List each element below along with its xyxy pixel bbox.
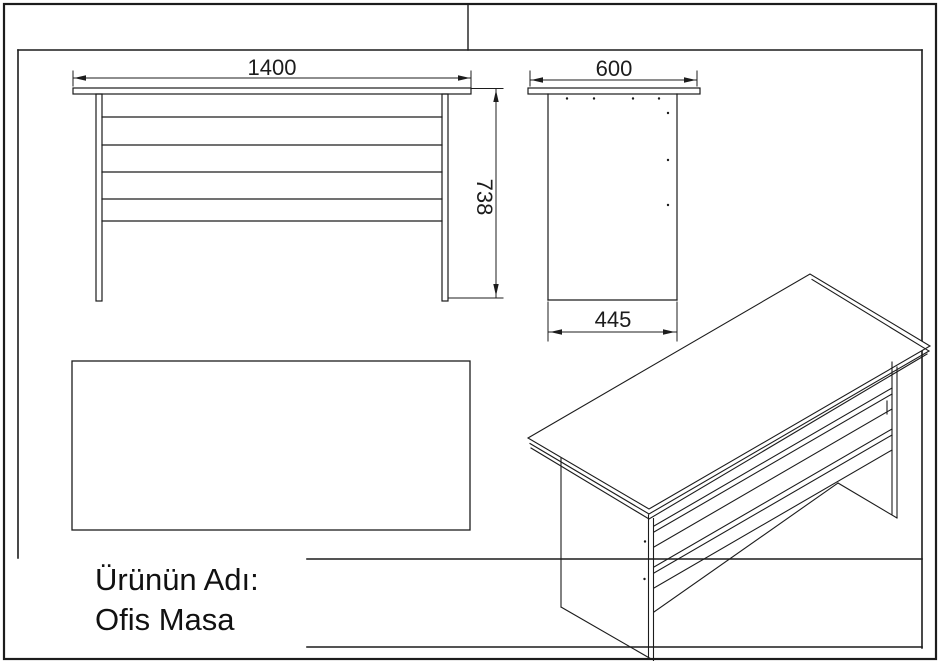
title-block-label: Ürünün Adı:: [95, 564, 259, 595]
side-panel: [548, 94, 677, 300]
front-desktop: [73, 88, 471, 94]
top-view-drawing: [72, 361, 470, 530]
front-view-drawing: [73, 88, 471, 301]
cad-drawing-page: 1400 738 600 445 Ürünün Adı: Ofis Masa: [0, 0, 942, 669]
front-height-dimension-label: 738: [473, 163, 495, 231]
arrowhead-left: [531, 77, 543, 82]
side-view-drawing: [528, 88, 700, 300]
arrowhead-left: [74, 75, 86, 80]
title-block-product-name: Ofis Masa: [95, 604, 235, 635]
front-left-leg: [96, 94, 102, 301]
front-width-dimension-label: 1400: [244, 57, 300, 79]
front-right-leg: [442, 94, 448, 301]
title-block-lines: [307, 559, 922, 647]
arrowhead-down: [493, 284, 498, 296]
side-bottom-dimension-label: 445: [585, 309, 641, 331]
side-desktop: [528, 88, 700, 94]
arrowhead-left: [550, 329, 562, 334]
arrowhead-right: [684, 77, 696, 82]
iso-dowel-holes: [643, 540, 646, 580]
arrowhead-right: [663, 329, 675, 334]
arrowhead-up: [493, 90, 498, 102]
arrowhead-right: [458, 75, 470, 80]
top-view-outline: [72, 361, 470, 530]
side-depth-dimension-label: 600: [586, 58, 642, 80]
front-back-panel-lines: [102, 117, 442, 221]
side-dowel-holes: [566, 97, 669, 206]
